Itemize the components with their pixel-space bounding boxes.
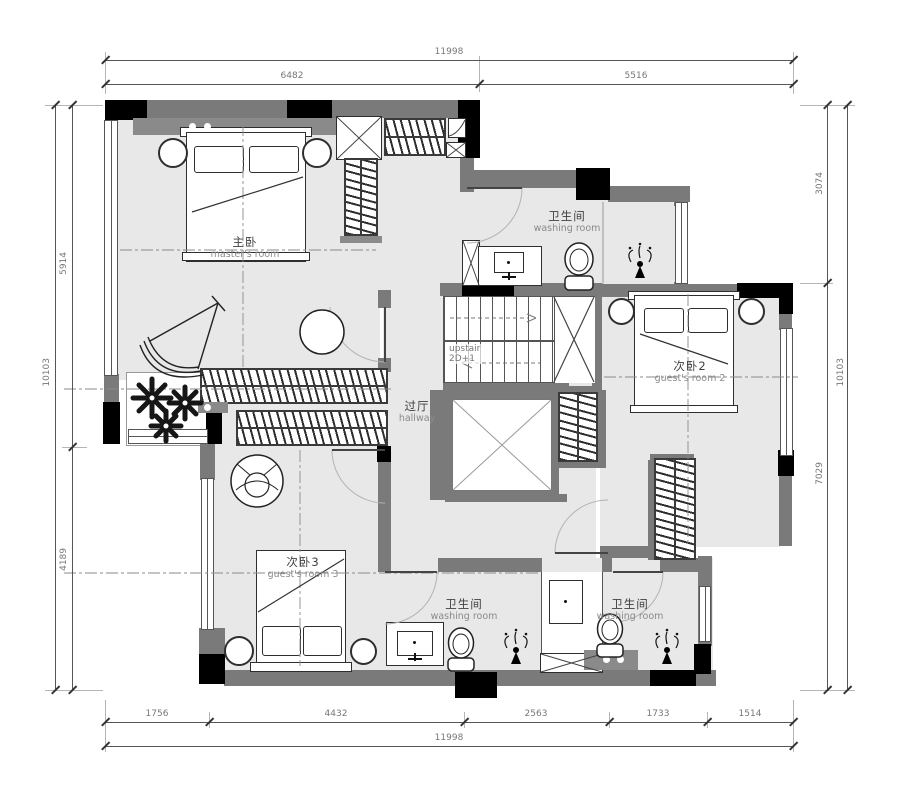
- dim-top-right: 5516: [606, 71, 666, 81]
- room-label-en: guest's room 3: [268, 569, 339, 581]
- stair-label-line2: 2D+1: [449, 354, 480, 364]
- toilet-icon: [448, 628, 474, 671]
- dim-top-total: 11998: [419, 47, 479, 57]
- dimension-line: [827, 105, 828, 690]
- armchair-icon: [231, 455, 283, 507]
- dim-right-total: 10103: [836, 358, 846, 387]
- dimension-line: [105, 60, 793, 61]
- room-label-zh: 过厅: [399, 400, 435, 413]
- extension-line: [479, 56, 480, 92]
- extension-line: [62, 447, 87, 448]
- dim-bottom-3: 2563: [511, 709, 561, 719]
- room-label-zh: 次卧2: [655, 360, 726, 373]
- dim-right-lower: 7029: [815, 462, 825, 485]
- room-label-guest3: 次卧3 guest's room 3: [268, 556, 339, 581]
- room-label-washing-top: 卫生间 washing room: [534, 210, 601, 235]
- room-label-zh: 卫生间: [597, 598, 664, 611]
- dim-bottom-5: 1514: [725, 709, 775, 719]
- plant-icon: [133, 379, 201, 441]
- x-box-marks: [337, 117, 602, 672]
- door-washroom-bl: [385, 572, 437, 624]
- stair-label-line1: upstair: [449, 344, 480, 354]
- dimension-line: [105, 746, 793, 747]
- shower-icon: [656, 629, 679, 664]
- room-label-zh: 卫生间: [431, 598, 498, 611]
- room-label-zh: 次卧3: [268, 556, 339, 569]
- side-table-icon: [300, 310, 344, 354]
- room-label-en: washing room: [431, 611, 498, 623]
- room-label-washing-bl: 卫生间 washing room: [431, 598, 498, 623]
- dim-right-upper: 3074: [815, 172, 825, 195]
- stair-arrow-up: [450, 314, 536, 322]
- door-guest2: [555, 500, 608, 553]
- dimension-line: [72, 105, 73, 690]
- room-label-en: guest's room 2: [655, 373, 726, 385]
- room-label-en: hallway: [399, 413, 435, 425]
- room-label-zh: 主卧: [211, 236, 280, 249]
- linework-overlay: [0, 0, 904, 794]
- dim-bottom-4: 1733: [633, 709, 683, 719]
- shower-icon: [629, 243, 652, 278]
- toilet-icon: [565, 243, 593, 290]
- dim-left-total: 10103: [42, 358, 52, 387]
- dim-bottom-total: 11998: [419, 733, 479, 743]
- shower-icon: [505, 629, 528, 664]
- void-x: [453, 400, 551, 490]
- dim-top-left: 6482: [262, 71, 322, 81]
- room-label-master: 主卧 master's room: [211, 236, 280, 261]
- dim-left-lower: 4189: [59, 548, 69, 571]
- dim-bottom-1: 1756: [132, 709, 182, 719]
- room-label-en: washing room: [534, 223, 601, 235]
- dimension-line: [847, 105, 848, 690]
- room-label-guest2: 次卧2 guest's room 2: [655, 360, 726, 385]
- floor-plan-canvas: 主卧 master's room 卫生间 washing room 次卧2 gu…: [0, 0, 904, 794]
- room-label-hallway: 过厅 hallway: [399, 400, 435, 425]
- room-label-washing-br: 卫生间 washing room: [597, 598, 664, 623]
- dimension-line: [55, 105, 56, 690]
- stair-landing-x: [554, 297, 594, 382]
- room-label-en: master's room: [211, 249, 280, 261]
- door-washroom-top: [467, 188, 522, 243]
- dim-bottom-2: 4432: [311, 709, 361, 719]
- stair-label: upstair 2D+1: [448, 344, 481, 364]
- room-label-zh: 卫生间: [534, 210, 601, 223]
- door-guest3: [332, 450, 385, 503]
- dimension-line: [105, 84, 793, 85]
- lounge-chair-icon: [140, 296, 225, 377]
- dim-left-upper: 5914: [59, 252, 69, 275]
- room-label-en: washing room: [597, 611, 664, 623]
